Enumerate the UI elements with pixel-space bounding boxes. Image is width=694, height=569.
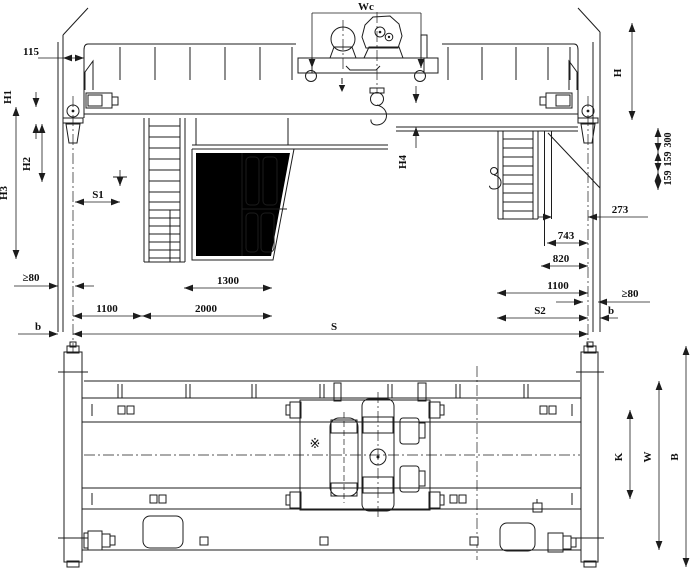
ladder-right [498, 131, 538, 219]
shaft-bearing [533, 503, 542, 512]
hook-limit-marker-right [490, 162, 502, 189]
under-girder-platform-left [192, 118, 388, 149]
plan-view: ※ K W B [58, 342, 691, 567]
crane-general-arrangement-drawing: Wc 115 H1 H2 H3 [0, 0, 694, 569]
dim-clearance-left: ≥80 [14, 272, 94, 286]
plan-end-truck-right [576, 342, 604, 567]
operator-cab [192, 149, 294, 260]
dim-820: 820 [541, 253, 588, 266]
dim-s1: S1 [75, 189, 120, 202]
dim-b-left: b [18, 321, 58, 334]
travel-motor-left-plan [84, 531, 115, 550]
dim-115: 115 [23, 46, 84, 58]
plan-girders [82, 366, 581, 560]
hook-assembly [339, 78, 387, 125]
dim-label-h2: H2 [21, 156, 33, 171]
rail-center-arrow [339, 85, 345, 92]
dim-clearance-right: ≥80 [556, 288, 650, 302]
dim-label-s: S [331, 321, 337, 333]
dim-label-b-overall: B [669, 453, 681, 461]
girder-railing-left [84, 44, 296, 80]
dim-label-wc: Wc [358, 1, 374, 13]
dim-label-w: W [642, 452, 654, 463]
travel-motor-right-plan [548, 533, 576, 552]
dim-label-1300: 1300 [217, 275, 240, 287]
dim-label-b-right: b [608, 305, 614, 317]
dim-label-743: 743 [558, 230, 575, 242]
dim-h1: H1 [2, 90, 58, 139]
equipment-box-plan [500, 523, 535, 551]
elevation-view: Wc 115 H1 H2 H3 [0, 1, 674, 352]
dim-label-h1: H1 [2, 90, 14, 104]
rope-drum-plan [330, 412, 358, 503]
ladder-left [144, 118, 185, 262]
reference-mark: ※ [310, 437, 321, 452]
dim-743: 743 [547, 230, 588, 243]
dim-label-b-left: b [35, 321, 41, 333]
dim-label-h: H [612, 68, 624, 77]
dim-label-clearance-right: ≥80 [621, 288, 639, 300]
drawing-canvas: Wc 115 H1 H2 H3 [0, 0, 694, 569]
dim-span-s: S [73, 321, 588, 334]
dim-label-300: 300 [663, 133, 674, 148]
trolley [298, 12, 438, 92]
dim-stack-300-159-159: 300 159 159 [658, 128, 674, 190]
girder-stiffeners [150, 85, 521, 115]
dimensions-plan: K W B [600, 346, 691, 567]
girder-end-gusset-left [85, 61, 93, 90]
dim-h3: H3 [0, 107, 56, 259]
hook-pulley [371, 93, 384, 106]
dim-1300: 1300 [184, 264, 272, 292]
dim-b-right: b [600, 305, 618, 318]
dim-label-h3: H3 [0, 185, 10, 200]
cab-roof-plan [143, 516, 183, 548]
dim-label-s1: S1 [92, 189, 104, 201]
under-girder-platform-right [396, 127, 578, 131]
hook [371, 105, 387, 125]
trolley-frame-notch [346, 66, 380, 70]
dim-label-115: 115 [23, 46, 39, 58]
travel-motor-left [88, 95, 102, 106]
support-column-right [541, 128, 662, 268]
trolley-frame [298, 58, 438, 73]
dim-label-1100-right: 1100 [547, 280, 569, 292]
dim-label-820: 820 [553, 253, 570, 265]
building-column-right [578, 8, 600, 332]
dim-w: W [600, 381, 670, 550]
dim-label-clearance-left: ≥80 [22, 272, 40, 284]
dim-label-159-lower: 159 [663, 171, 674, 186]
dim-label-k: K [613, 452, 625, 461]
hoist-drum-unit [329, 20, 357, 70]
dim-2000: 2000 [142, 262, 272, 320]
hoist-reducer-unit [362, 16, 403, 58]
trolley-wheel-right [415, 71, 426, 82]
dim-s2: S2 [497, 305, 588, 318]
dim-h2: H2 [21, 124, 56, 182]
dim-label-159-upper: 159 [663, 152, 674, 167]
dim-k: K [600, 410, 642, 499]
dim-1100-left: 1100 [73, 264, 142, 320]
trolley-post [421, 35, 427, 58]
end-truck-right [540, 93, 598, 143]
travel-motor-right [556, 95, 570, 106]
dimensions-elevation: Wc 115 H1 H2 H3 [0, 1, 674, 334]
dim-h4: H4 [397, 86, 428, 174]
trolley-plan: ※ [286, 383, 444, 518]
plan-railing-posts [118, 384, 528, 398]
end-truck-left [63, 93, 118, 143]
hook-limit-marker-left [113, 170, 127, 206]
dim-label-1100-left: 1100 [96, 303, 118, 315]
trolley-wheel-left [306, 71, 317, 82]
dim-label-s2: S2 [534, 305, 546, 317]
dim-label-273: 273 [612, 204, 629, 216]
dim-label-2000: 2000 [195, 303, 218, 315]
dim-label-h4: H4 [397, 154, 409, 169]
dim-h: H [432, 23, 646, 120]
girder-railing-right [442, 44, 578, 80]
